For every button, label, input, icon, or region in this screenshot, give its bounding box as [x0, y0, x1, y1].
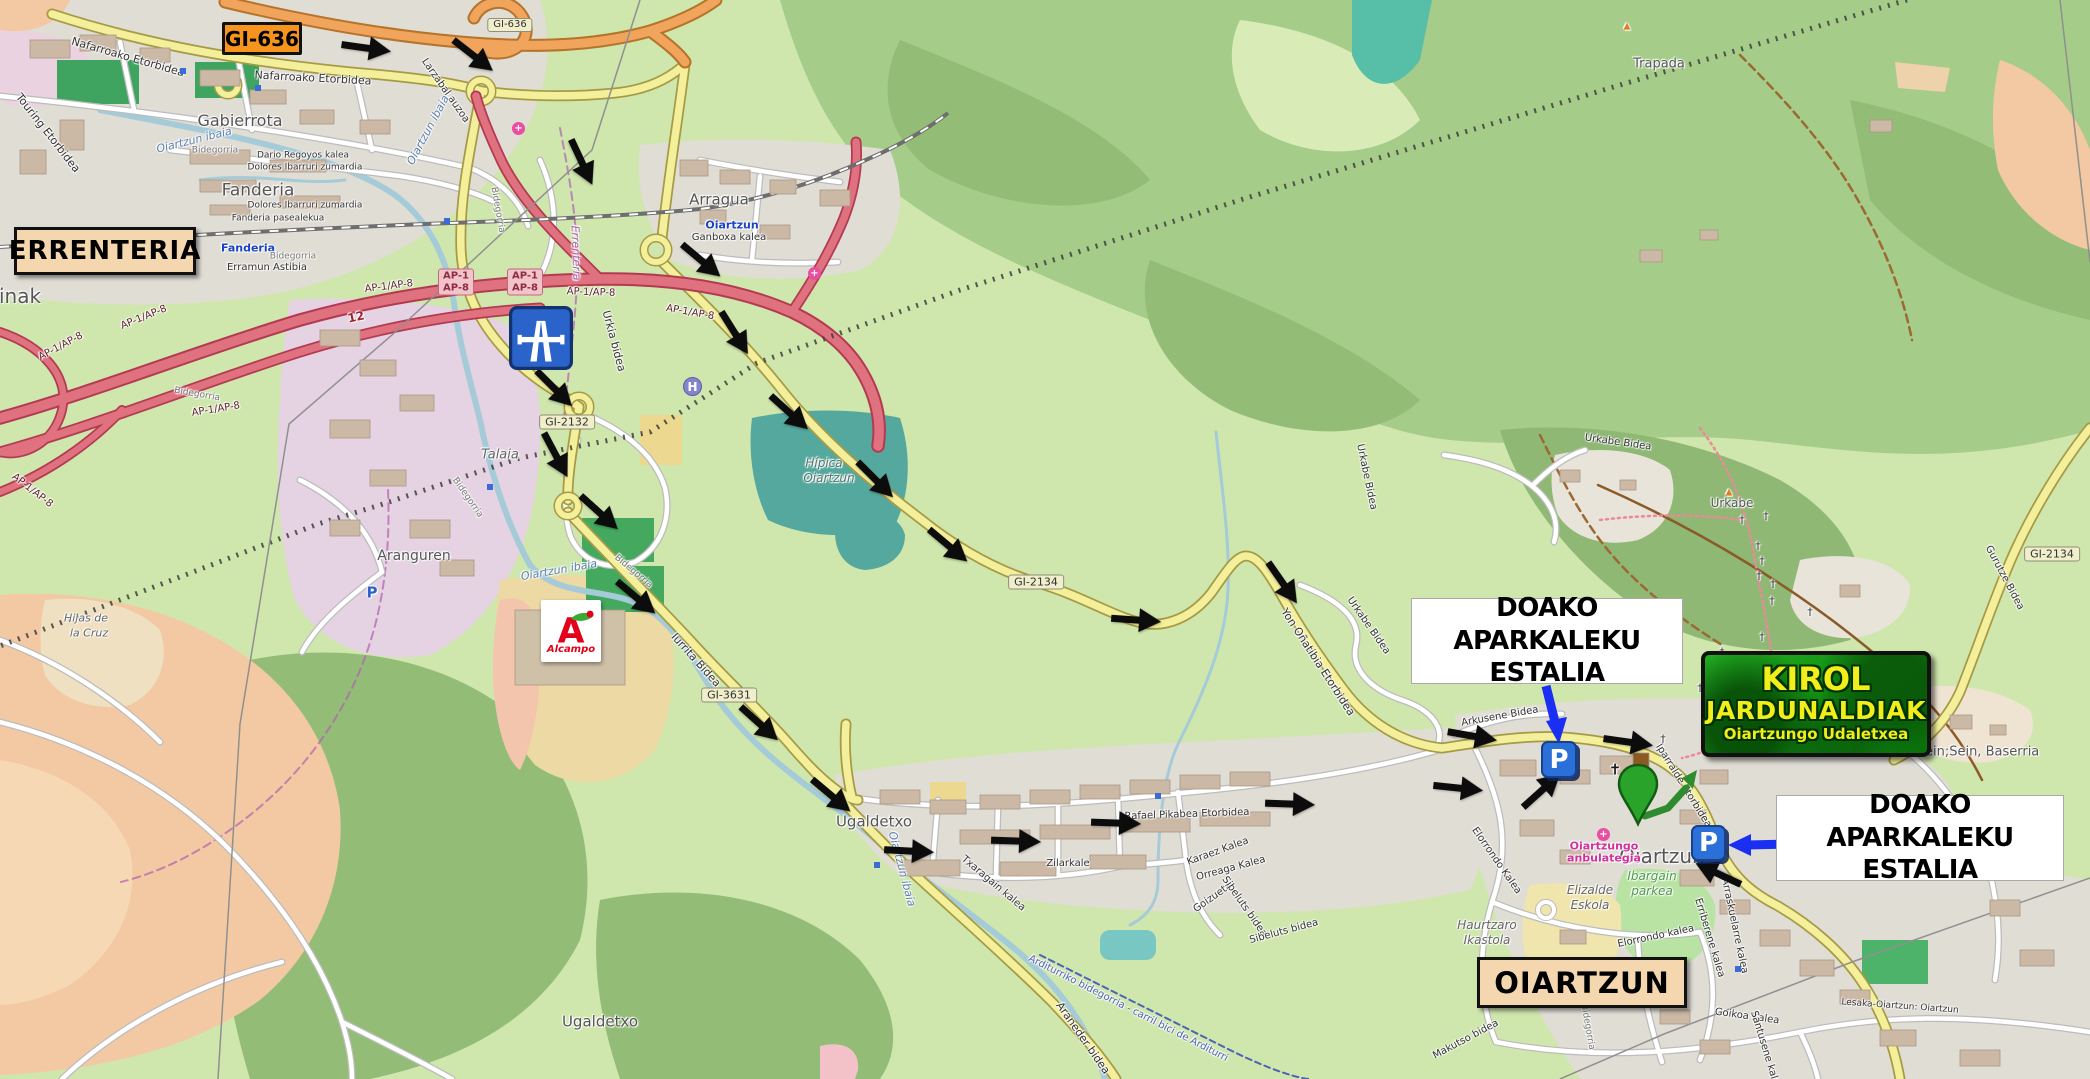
medical-icon-2: + [808, 267, 821, 280]
oiartzun-label-box: OIARTZUN [1477, 957, 1687, 1008]
alcampo-bird-icon: A [545, 608, 597, 648]
map-canvas: GabierrotaFanderiaArraguaTalaiaAranguren… [0, 0, 2090, 1079]
free-parking-label-box-2: DOAKO APARKALEKU ESTALIA [1776, 795, 2064, 881]
medical-icon-1: + [512, 122, 525, 135]
helipad-icon: H [683, 377, 702, 396]
errenteria-label: ERRENTERIA [9, 236, 202, 266]
parking-letter: P [1549, 745, 1568, 775]
parking-icon-1: P [1541, 741, 1577, 778]
medical-cross: + [1599, 830, 1607, 840]
event-subtitle: Oiartzungo Udaletxea [1724, 725, 1908, 745]
medical-cross: + [810, 269, 818, 279]
motorway-pictogram [509, 306, 573, 370]
event-title-line2: JARDUNALDIAK [1706, 697, 1926, 726]
gi636-road-badge-label: GI-636 [225, 27, 299, 51]
anbulategia-icon: + [1597, 828, 1610, 841]
oiartzun-label: OIARTZUN [1494, 966, 1670, 1000]
helipad-letter: H [687, 380, 697, 394]
free-parking-line1: DOAKO APARKALEKU [1777, 789, 2063, 854]
free-parking-line2: ESTALIA [1489, 657, 1604, 690]
free-parking-label-box-1: DOAKO APARKALEKU ESTALIA [1411, 598, 1683, 684]
free-parking-line1: DOAKO APARKALEKU [1412, 592, 1682, 657]
parking-icon-2: P [1691, 825, 1726, 861]
gi636-road-badge: GI-636 [222, 22, 302, 55]
motorway-icon [509, 306, 573, 370]
event-title-line1: KIROL [1762, 663, 1871, 697]
free-parking-line2: ESTALIA [1862, 854, 1977, 887]
kirol-event-badge: KIROL JARDUNALDIAK Oiartzungo Udaletxea [1701, 651, 1931, 757]
parking-letter: P [1699, 828, 1718, 858]
errenteria-label-box: ERRENTERIA [14, 227, 196, 275]
medical-cross: + [514, 124, 522, 134]
base-map [0, 0, 2090, 1079]
alcampo-brand-label: Alcampo [547, 644, 595, 655]
alcampo-logo: A Alcampo [541, 600, 601, 662]
